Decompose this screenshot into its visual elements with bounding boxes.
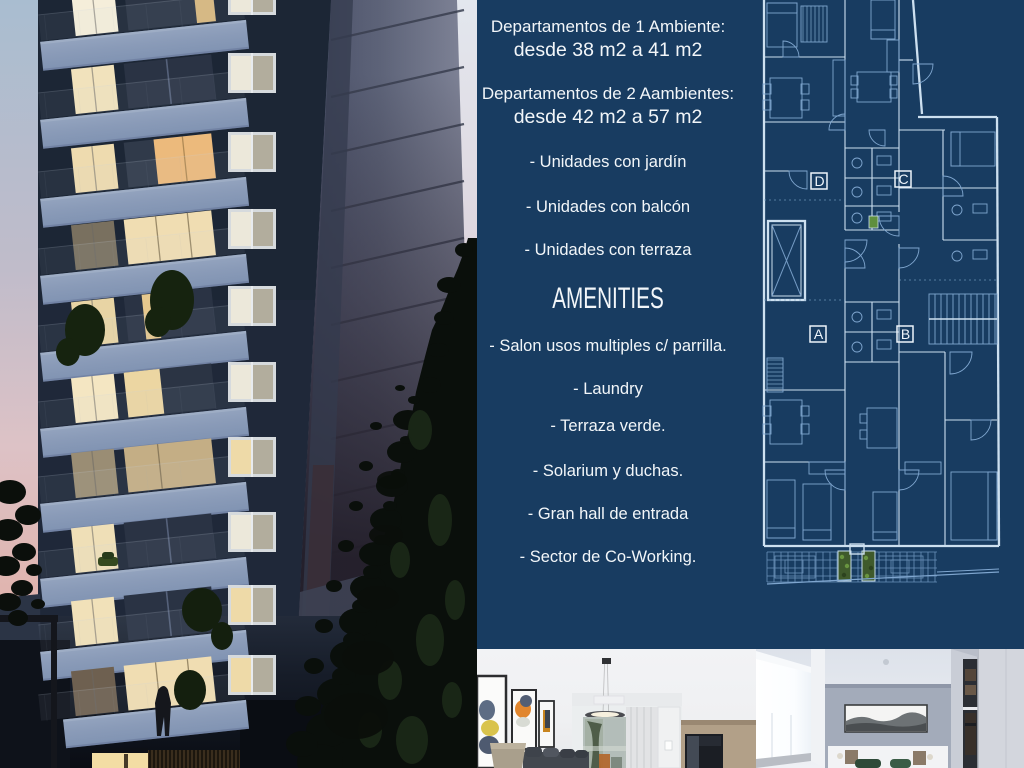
svg-text:B: B: [901, 326, 910, 342]
svg-text:D: D: [814, 173, 824, 189]
svg-text:A: A: [814, 326, 824, 342]
svg-text:C: C: [898, 171, 908, 187]
